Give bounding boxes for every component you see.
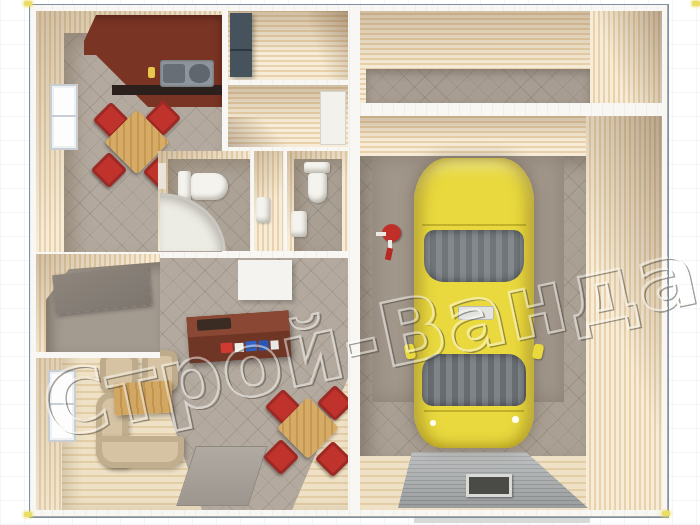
driveway-apron (414, 518, 590, 523)
selection-frame (29, 4, 669, 518)
frame-handle-top-right (692, 1, 700, 6)
frame-handle-bottom-right (662, 511, 670, 516)
floorplan-image[interactable]: Строй-Ванда Строй-Ванда (0, 0, 700, 525)
frame-handle-top-left (24, 1, 32, 6)
frame-handle-bottom-left (24, 512, 32, 517)
